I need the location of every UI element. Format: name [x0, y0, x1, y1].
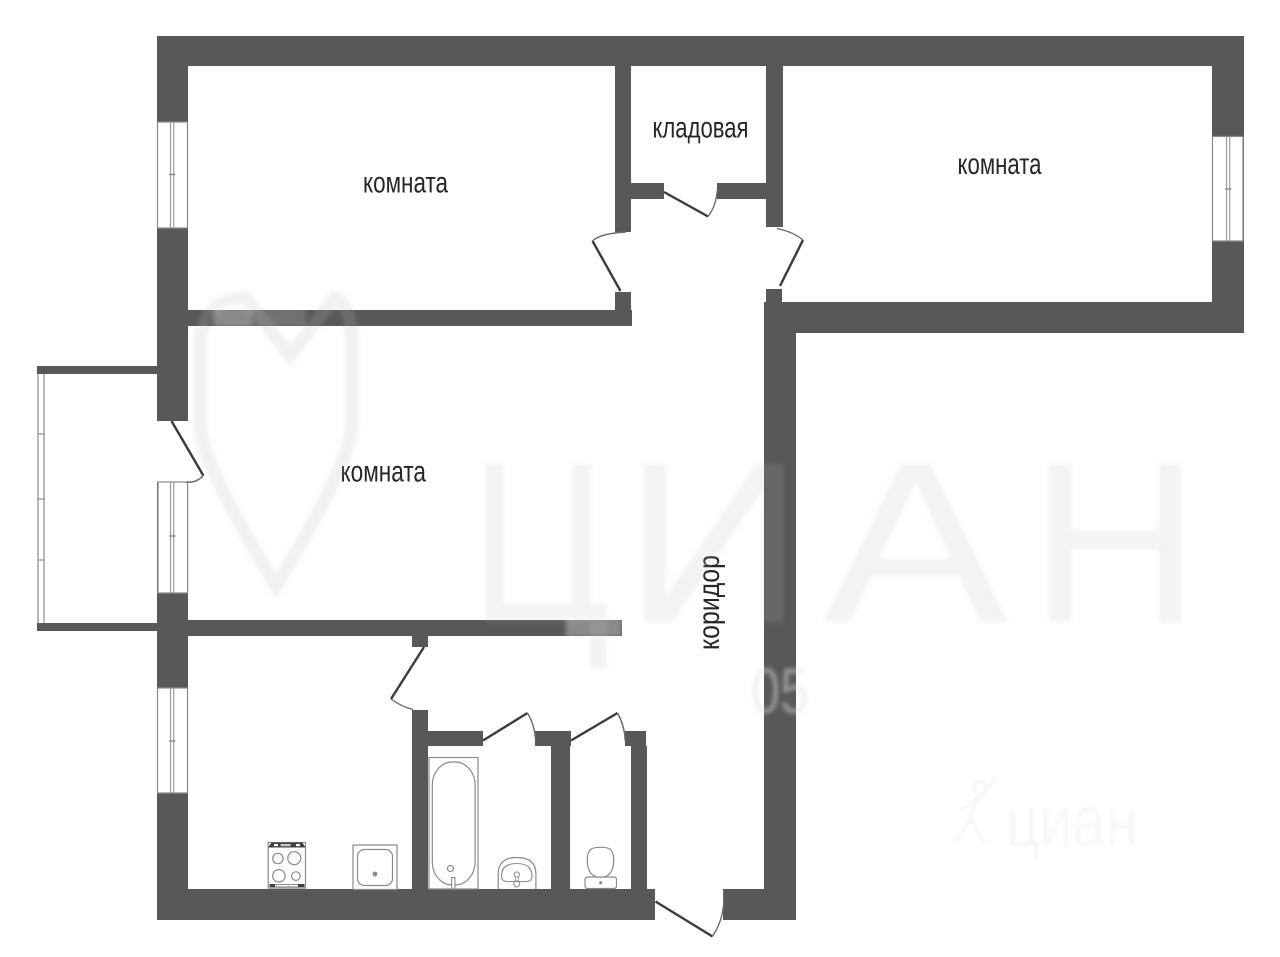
svg-text:комната: комната: [341, 456, 427, 489]
svg-text:кладовая: кладовая: [653, 112, 749, 145]
svg-text:И: И: [624, 414, 804, 671]
svg-text:Н: Н: [1030, 414, 1200, 671]
svg-text:05: 05: [751, 655, 809, 727]
svg-text:циан: циан: [1006, 782, 1138, 862]
svg-text:комната: комната: [958, 148, 1042, 181]
svg-text:комната: комната: [363, 167, 448, 200]
svg-text:А: А: [822, 414, 1008, 671]
